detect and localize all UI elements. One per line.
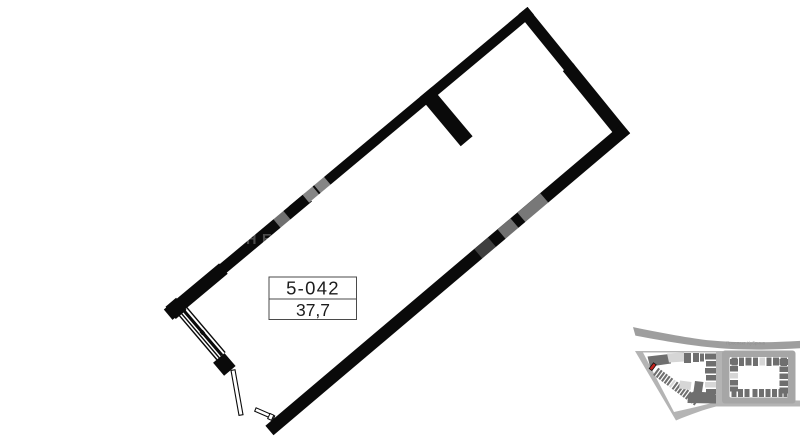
svg-text:5-042: 5-042 (286, 278, 340, 299)
svg-text:37,7: 37,7 (296, 300, 330, 320)
svg-text:Проспект Кубрина: Проспект Кубрина (726, 341, 766, 346)
svg-text:НЕ: НЕ (246, 232, 277, 248)
